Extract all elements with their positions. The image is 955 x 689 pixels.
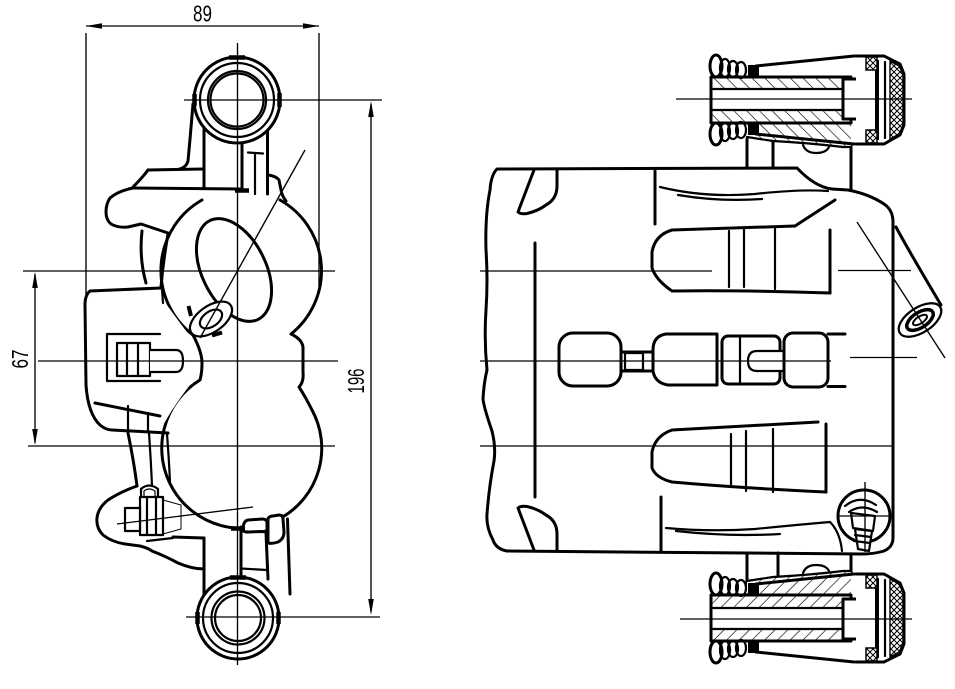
svg-text:67: 67 [7, 350, 33, 369]
svg-text:89: 89 [193, 1, 212, 27]
svg-text:196: 196 [343, 369, 369, 394]
